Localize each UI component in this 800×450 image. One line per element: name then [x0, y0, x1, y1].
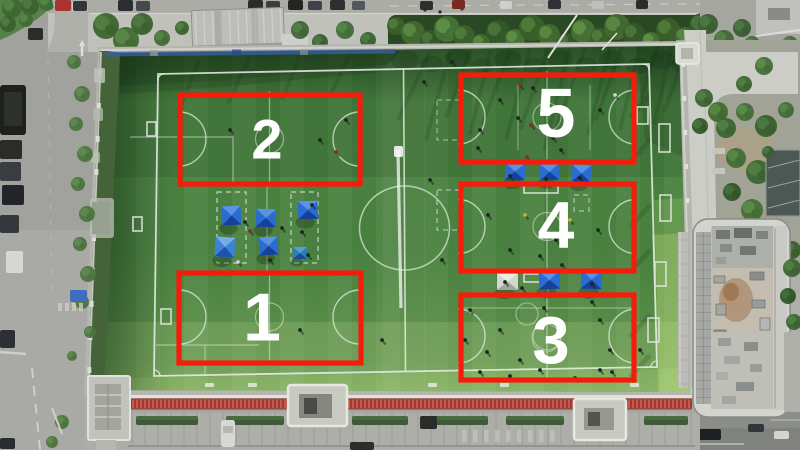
svg-text:4: 4	[538, 188, 575, 262]
svg-text:1: 1	[243, 280, 281, 356]
svg-text:3: 3	[532, 304, 569, 379]
svg-text:5: 5	[537, 74, 576, 152]
svg-text:2: 2	[251, 108, 282, 171]
